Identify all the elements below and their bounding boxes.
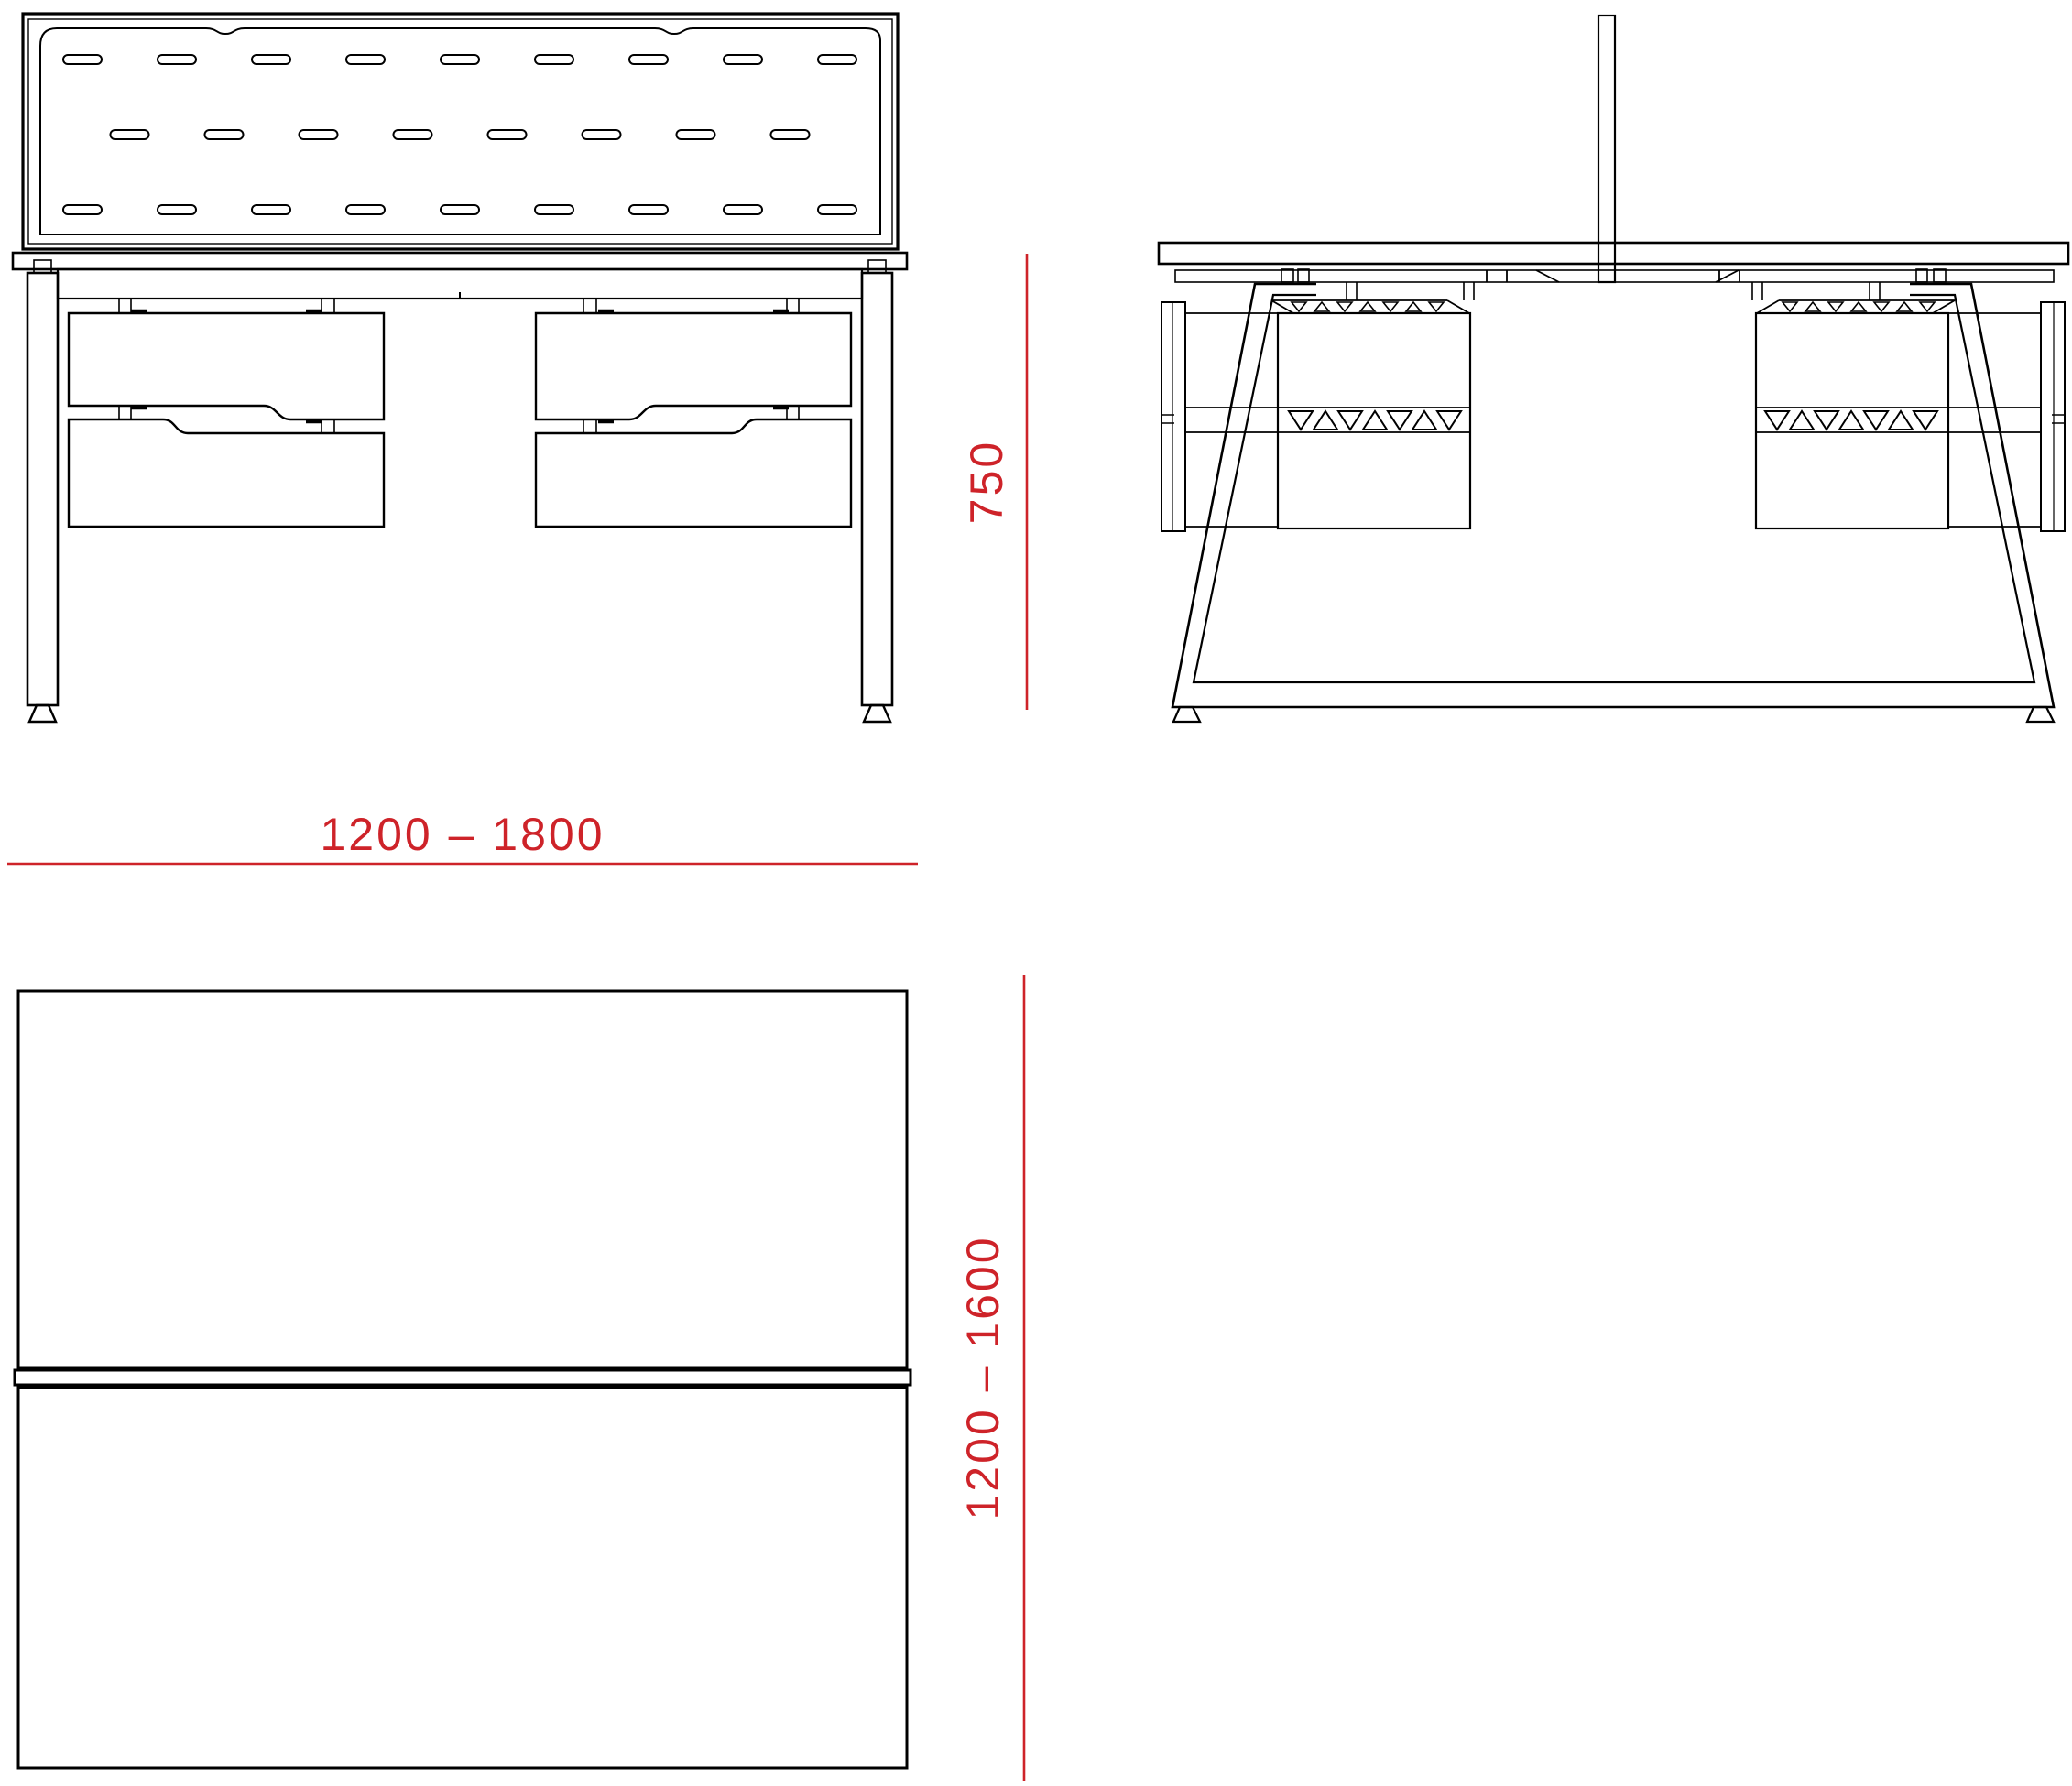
- triangle-down-icon: [1429, 302, 1444, 311]
- panel-slot: [300, 130, 338, 139]
- rear-panel-right-body: [2041, 302, 2065, 531]
- triangle-down-icon: [1338, 411, 1362, 430]
- triangle-down-icon: [1920, 302, 1935, 311]
- triangle-up-icon: [1805, 302, 1820, 311]
- triangle-up-icon: [1314, 411, 1337, 430]
- leg-right: [862, 273, 892, 705]
- small-triangles-left: [1292, 302, 1444, 311]
- drawer-top-right: [536, 313, 851, 419]
- frame-hanger-tabs: [1281, 269, 1946, 300]
- big-triangles-left: [1289, 411, 1461, 430]
- a-frame-outer: [1172, 284, 2054, 707]
- leg-tab-left: [34, 260, 51, 273]
- panel-slot: [346, 205, 385, 214]
- technical-drawing-canvas: 1200 – 1800 750 1200 – 1600: [0, 0, 2072, 1786]
- triangle-up-icon: [1314, 302, 1329, 311]
- triangle-down-icon: [1874, 302, 1889, 311]
- triangle-down-icon: [1864, 411, 1888, 430]
- rear-panel-left-body: [1161, 302, 1185, 531]
- panel-slot: [535, 205, 573, 214]
- triangle-down-icon: [1815, 411, 1838, 430]
- triangle-down-icon: [1914, 411, 1937, 430]
- suspension-tabs: [119, 299, 799, 433]
- panel-slot: [771, 130, 810, 139]
- width-dimension-label: 1200 – 1800: [320, 809, 605, 860]
- panel-slot: [535, 55, 573, 64]
- desktop-plan-top: [18, 991, 907, 1367]
- panel-slots: [63, 55, 856, 214]
- leg-left: [27, 273, 58, 705]
- triangle-up-icon: [1363, 411, 1387, 430]
- triangle-down-icon: [1289, 411, 1313, 430]
- screen-panel-inner: [40, 28, 880, 234]
- panel-slot: [205, 130, 244, 139]
- triangle-down-icon: [1337, 302, 1352, 311]
- triangle-down-icon: [1383, 302, 1398, 311]
- panel-slot: [158, 55, 196, 64]
- a-frame: [1172, 284, 2054, 722]
- side-view: [1159, 16, 2068, 722]
- screen-strip-plan: [15, 1370, 911, 1385]
- panel-slot: [724, 205, 762, 214]
- technical-drawing-svg: 1200 – 1800 750 1200 – 1600: [0, 0, 2072, 1786]
- big-triangles-right: [1765, 411, 1937, 430]
- panel-slot: [629, 55, 668, 64]
- panel-slot: [252, 55, 290, 64]
- pedestal-side-left: [1271, 300, 1470, 528]
- triangle-down-icon: [1765, 411, 1789, 430]
- triangle-down-icon: [1783, 302, 1797, 311]
- triangle-down-icon: [1292, 302, 1306, 311]
- panel-slot: [158, 205, 196, 214]
- panel-slot: [488, 130, 527, 139]
- height-dimension-label: 750: [961, 440, 1012, 524]
- small-triangles-right: [1783, 302, 1935, 311]
- worktop-side: [1159, 243, 2068, 264]
- triangle-up-icon: [1839, 411, 1863, 430]
- foot-left-icon: [29, 705, 56, 722]
- foot-right-icon: [864, 705, 890, 722]
- panel-slot: [818, 205, 856, 214]
- side-rails-right: [1948, 313, 2041, 527]
- worktop-front: [13, 253, 907, 269]
- triangle-up-icon: [1360, 302, 1375, 311]
- pedestal-front-left: [69, 313, 384, 527]
- drawer-top-left: [69, 313, 384, 419]
- pedestal-side-right: [1756, 300, 1955, 528]
- triangle-down-icon: [1828, 302, 1843, 311]
- bracket-ticks: [1487, 270, 1739, 282]
- panel-slot: [63, 205, 102, 214]
- panel-slot: [629, 205, 668, 214]
- panel-slot: [346, 55, 385, 64]
- triangle-up-icon: [1889, 411, 1913, 430]
- panel-slot: [583, 130, 621, 139]
- plan-view: [15, 991, 911, 1768]
- triangle-up-icon: [1412, 411, 1436, 430]
- leg-tab-right: [868, 260, 886, 273]
- dimensions: 1200 – 1800 750 1200 – 1600: [7, 254, 1027, 1781]
- panel-slot: [394, 130, 432, 139]
- panel-slot: [252, 205, 290, 214]
- rear-panel-left: [1161, 302, 1185, 531]
- triangle-up-icon: [1897, 302, 1912, 311]
- front-view: [13, 14, 907, 722]
- drawer-bottom-right: [536, 419, 851, 527]
- rear-panel-right: [2041, 302, 2065, 531]
- center-bracket: [1487, 270, 1739, 282]
- panel-slot: [63, 55, 102, 64]
- panel-slot: [677, 130, 715, 139]
- panel-slot: [111, 130, 149, 139]
- a-frame-inner: [1194, 295, 2034, 682]
- drawer-bottom-left: [69, 419, 384, 527]
- panel-slot: [441, 55, 479, 64]
- panel-slot: [818, 55, 856, 64]
- triangle-up-icon: [1790, 411, 1814, 430]
- screen-panel: [23, 14, 898, 249]
- triangle-up-icon: [1406, 302, 1421, 311]
- panel-slot: [724, 55, 762, 64]
- triangle-up-icon: [1851, 302, 1866, 311]
- side-foot-left-icon: [1173, 707, 1200, 722]
- triangle-down-icon: [1437, 411, 1461, 430]
- side-foot-right-icon: [2027, 707, 2054, 722]
- depth-dimension-label: 1200 – 1600: [957, 1235, 1009, 1519]
- triangle-down-icon: [1388, 411, 1412, 430]
- desktop-plan-bottom: [18, 1388, 907, 1768]
- panel-slot: [441, 205, 479, 214]
